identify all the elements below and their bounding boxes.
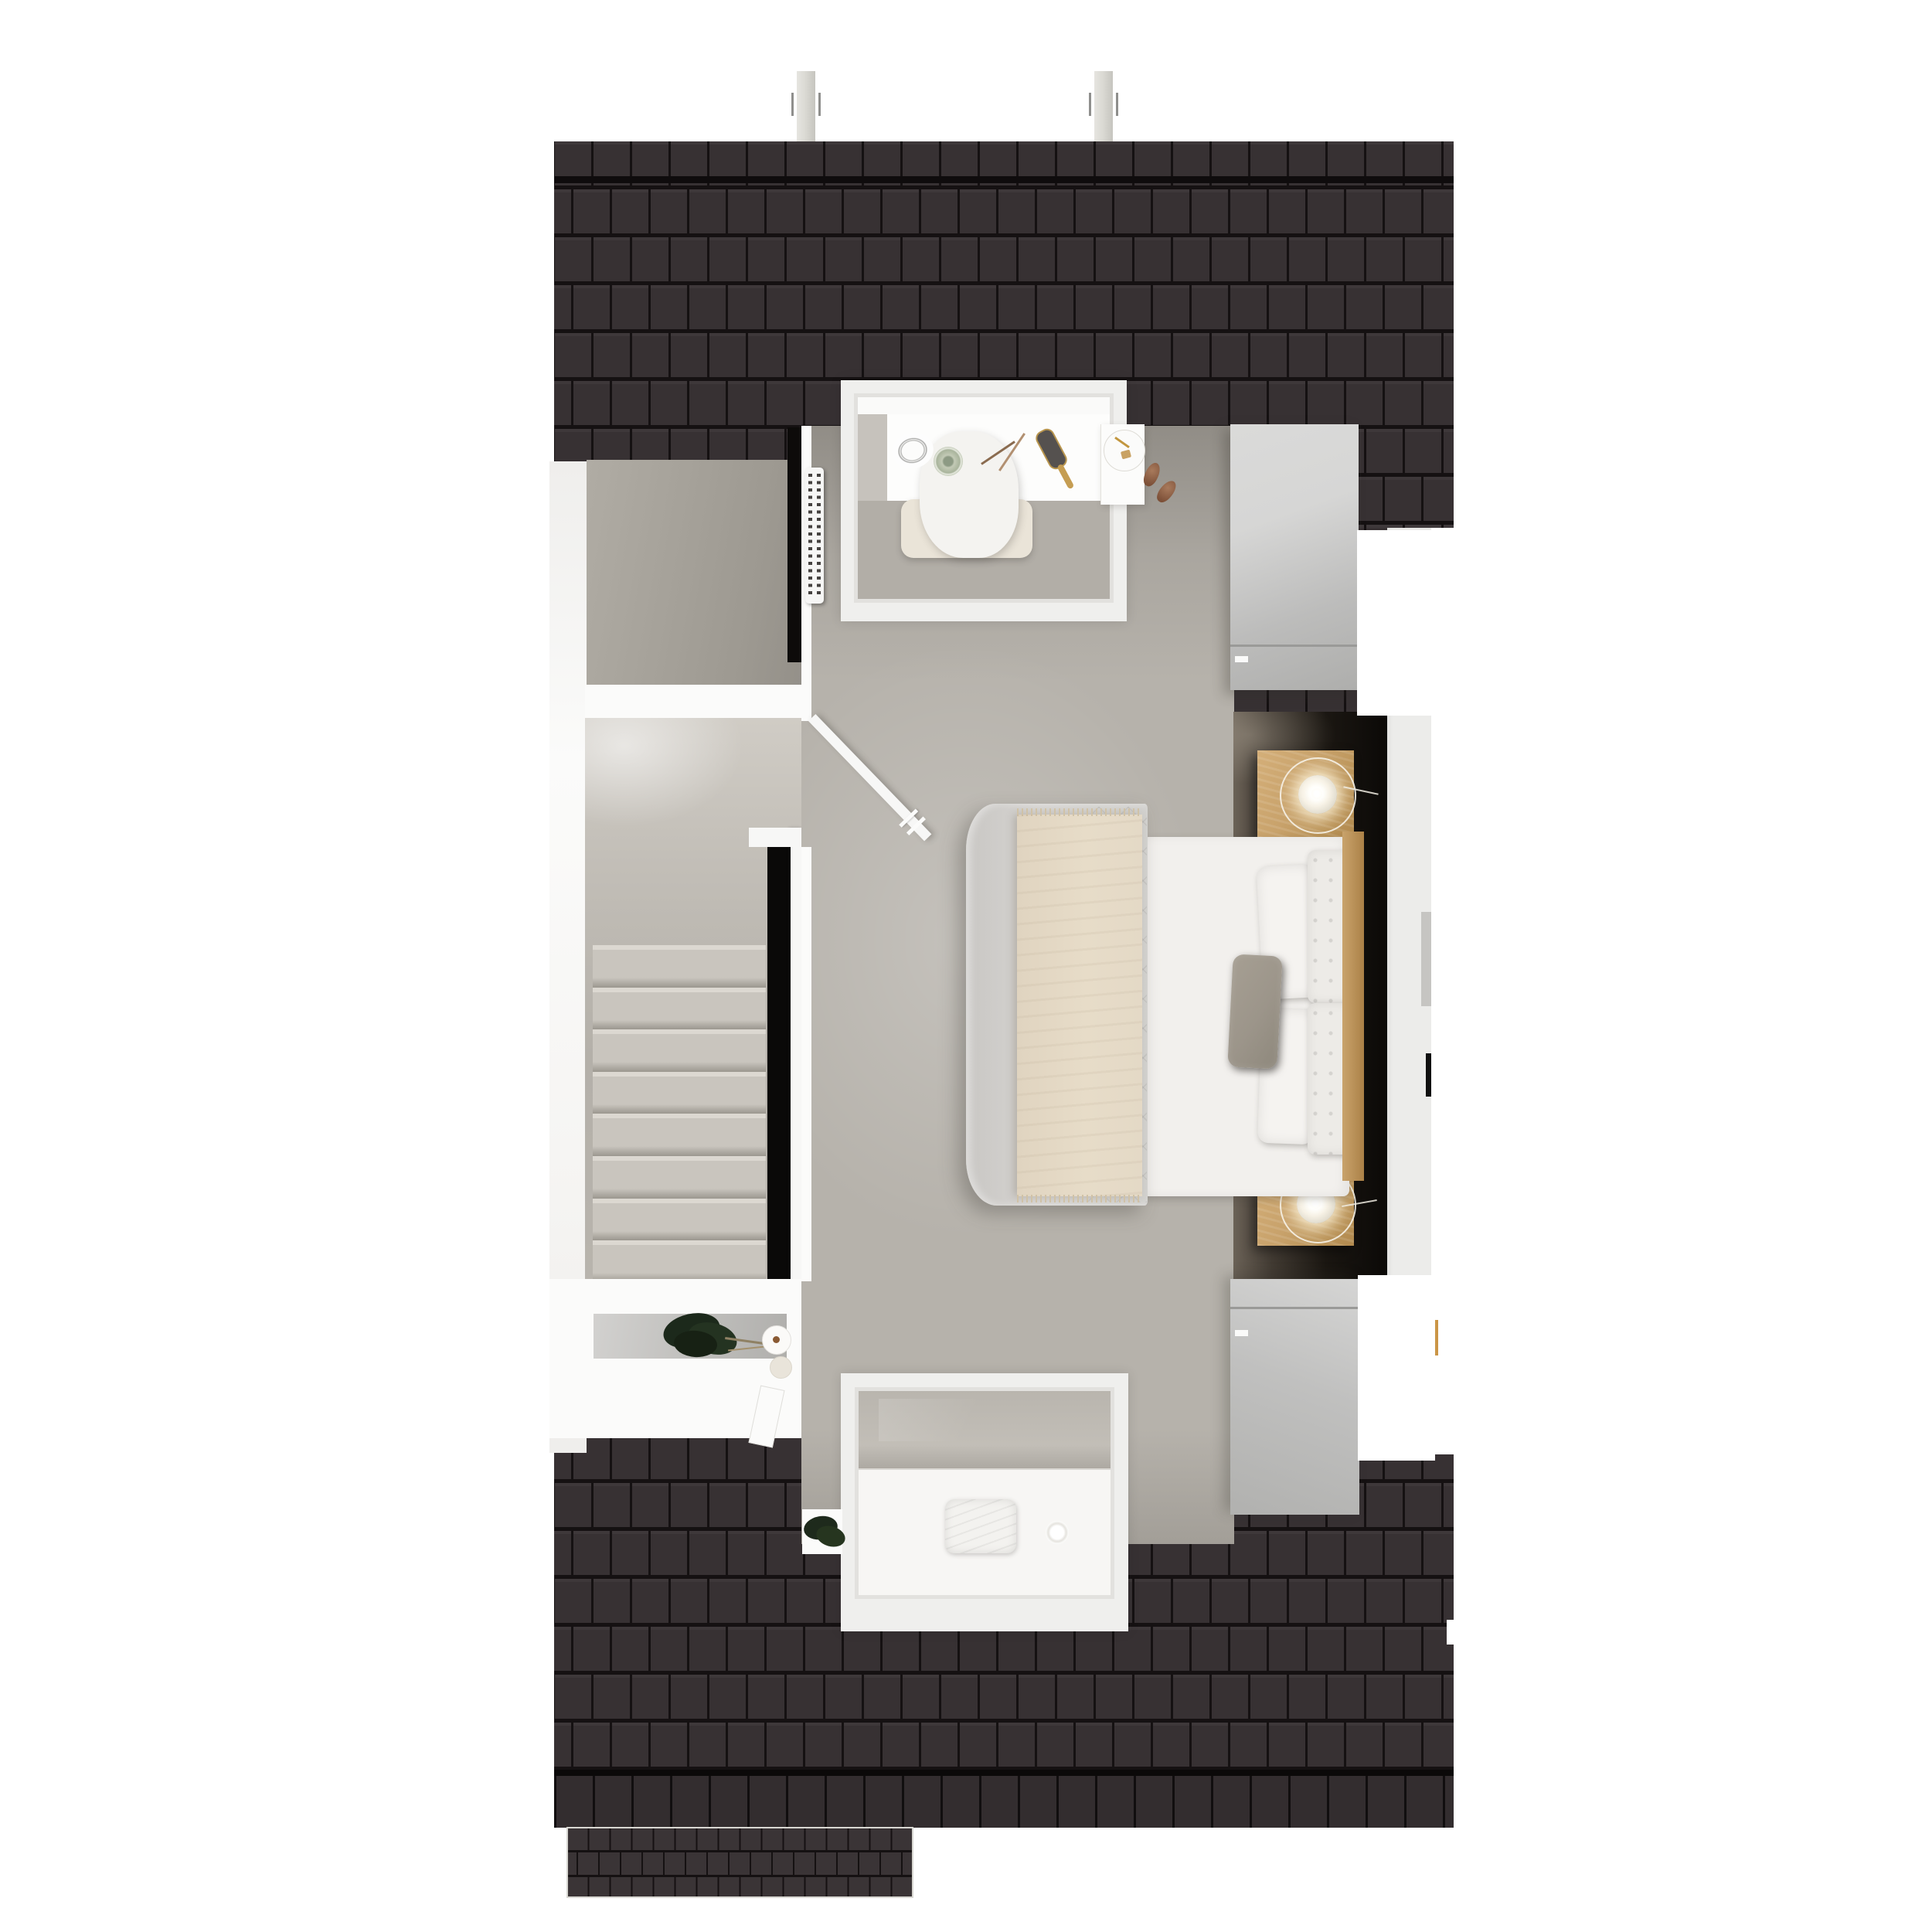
bowl — [1046, 1521, 1069, 1544]
dormer-top-interior — [854, 393, 1114, 603]
stair-railing-top — [749, 828, 803, 847]
lower-right-wall — [1358, 1275, 1435, 1461]
candle-small — [770, 1356, 792, 1379]
staircase — [593, 945, 766, 1283]
stair-tread — [593, 1114, 766, 1156]
wall-window-mark-3 — [1426, 1053, 1431, 1097]
throw-wrinkles — [1017, 815, 1142, 1196]
candle-large — [762, 1325, 791, 1355]
upper-right-wall — [1357, 530, 1451, 716]
wardrobe-top-right — [1230, 424, 1359, 690]
throw-blanket — [1017, 815, 1142, 1196]
window-sill — [858, 397, 1110, 414]
stair-tread — [593, 1199, 766, 1241]
window-glass — [859, 1391, 1111, 1468]
teacup — [934, 447, 963, 476]
stair-tread — [593, 945, 766, 988]
floor-plan-render — [0, 0, 1932, 1932]
bench-cushion — [945, 1499, 1016, 1553]
wall-window-mark-2 — [1421, 912, 1431, 1006]
headboard-wood — [1342, 832, 1364, 1181]
bedroom-wall-lower — [801, 847, 811, 1281]
wardrobe-bottom-right — [1230, 1279, 1359, 1515]
jewelry-tray — [1104, 430, 1145, 471]
stair-tread — [593, 1029, 766, 1072]
radiator — [805, 468, 824, 604]
stair-railing-side — [791, 828, 802, 1284]
stair-tread — [593, 1072, 766, 1114]
closet-partition-wall — [585, 685, 803, 719]
accent-pillow-gray — [1227, 954, 1283, 1069]
stair-tread — [593, 1156, 766, 1199]
roof-edge-notch — [1447, 1620, 1467, 1645]
stairwell-void — [767, 845, 791, 1283]
dormer-window-bottom — [841, 1373, 1128, 1631]
dormer-bottom-interior — [855, 1387, 1114, 1599]
door-handle — [899, 808, 918, 827]
closet-room-floor — [587, 460, 801, 688]
dormer-window-top — [841, 380, 1127, 621]
closet-black-wall — [787, 427, 801, 662]
lamp-bulb-top — [1298, 775, 1337, 814]
stair-tread — [593, 988, 766, 1030]
stair-tread — [593, 1240, 766, 1283]
